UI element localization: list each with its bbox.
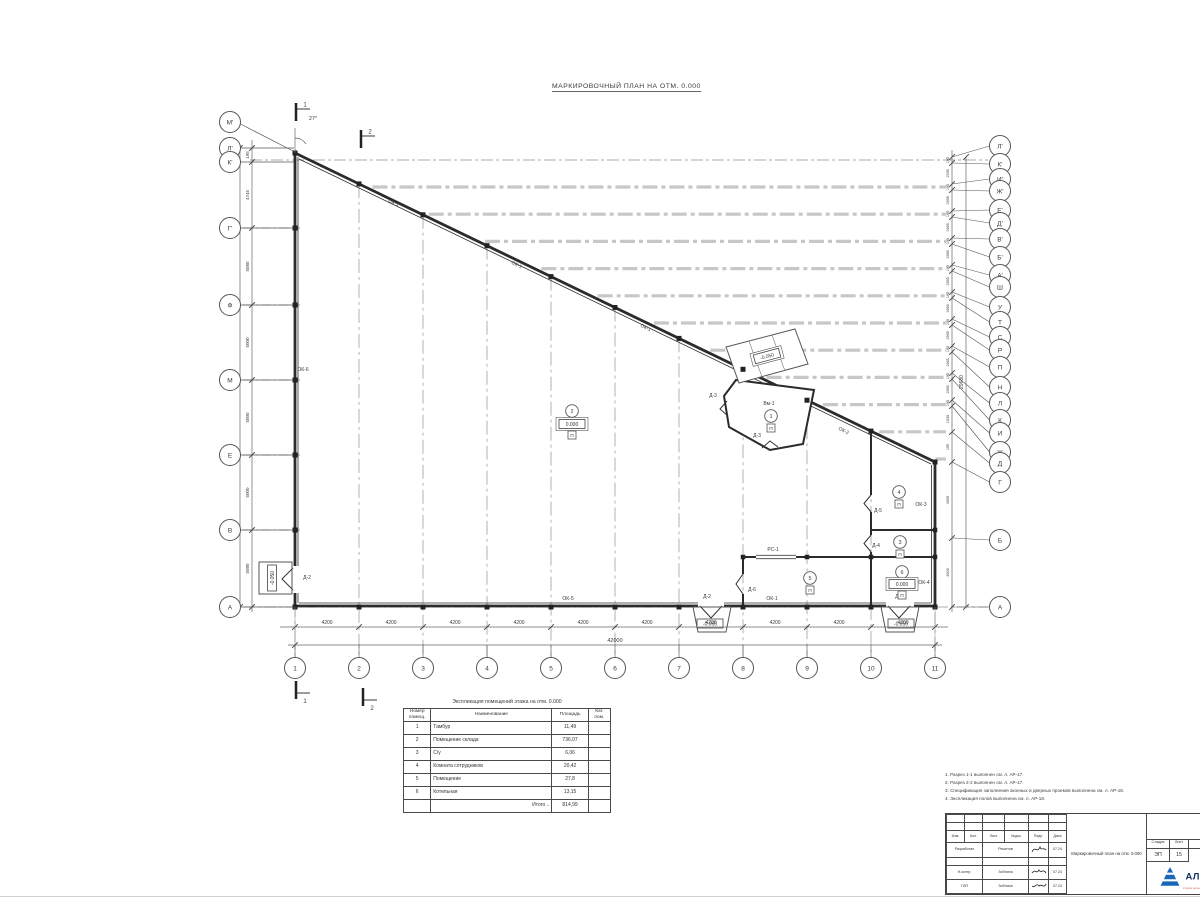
axis-leader (952, 146, 990, 157)
dim-label: 4200 (769, 620, 780, 626)
col-izm: Изм. (947, 831, 965, 843)
door-leaf (864, 495, 871, 512)
room-area: 6,06 (552, 747, 588, 760)
room-cat (588, 786, 610, 799)
note-line: 2. Разрез 2-2 выполнен см. л. АР-17. (945, 779, 1185, 787)
note-line: 4. Экспликация полов выполнена см. л. АР… (945, 795, 1185, 803)
table-row: 1Тамбур11,49 (404, 721, 611, 734)
axis-bubble-right-label: В' (997, 236, 1003, 243)
opening-label: ОК-1 (766, 596, 777, 602)
axis-bubble-right-label: И (998, 430, 1003, 437)
column-marker (357, 181, 362, 186)
column-marker (677, 336, 682, 341)
signer-role: Н.контр. (947, 866, 983, 880)
axis-bubble-right-label: К' (997, 161, 1002, 168)
axis-bubble-right-label: Ж' (996, 188, 1003, 195)
axis-leader (952, 462, 990, 482)
room-area: 20,42 (552, 760, 588, 773)
stage-label: Стадия (1147, 839, 1170, 849)
title-block: Изм. Кол. Лист №док. Подп. Дата Разработ… (945, 813, 1200, 895)
doc-name: Маркировочный план на отм. 0.000 (1071, 851, 1141, 857)
empty-row (947, 815, 1067, 823)
axis-bubble-right-label: Д (998, 460, 1003, 467)
column-marker (933, 460, 938, 465)
dim-total-label: 29680 (959, 375, 965, 389)
axis-bubble-bottom-label: 7 (677, 665, 681, 672)
empty-cell (404, 799, 431, 812)
axis-leader (952, 373, 990, 403)
floor-plan: -0.050-0.050-0.050-0.0504200420042004200… (0, 0, 1200, 770)
column-marker (933, 528, 938, 533)
axis-bubble-left-label: М' (227, 119, 234, 126)
signer-row: Н.контр. Зобнина 07.24 (947, 866, 1067, 880)
axis-bubble-right-label: Д' (997, 220, 1003, 227)
note-line: 1. Разрез 1-1 выполнен см. л. АР-17. (945, 771, 1185, 779)
opening-label: ОК-4 (918, 580, 929, 586)
dim-label: 5000 (245, 487, 250, 498)
room-number: 2 (404, 734, 431, 747)
axis-bubble-right-label: Ш (997, 284, 1003, 291)
sign-date: 07.24 (1049, 842, 1067, 857)
axis-leader (952, 346, 990, 367)
dim-label: 1965 (946, 331, 950, 339)
signer-role: ГИП (947, 880, 983, 894)
column-marker (677, 605, 682, 610)
col-area: Площадь (552, 708, 588, 721)
room-name: С/у (431, 747, 552, 760)
axis-bubble-bottom-label: 5 (549, 665, 553, 672)
column-marker (549, 605, 554, 610)
col-kol: Кол. (965, 831, 983, 843)
dim-label: 195 (946, 157, 950, 163)
dim-label: 4500 (946, 568, 950, 576)
column-marker (805, 555, 810, 560)
opening-label: Д-4 (872, 543, 880, 549)
room-number: 6 (900, 570, 903, 576)
dim-label: 195 (946, 319, 950, 325)
opening-label: Д-2 (703, 594, 711, 600)
opening-label: ОК-3 (915, 502, 926, 508)
dim-label: 195 (245, 151, 250, 159)
room-number: 1 (769, 414, 772, 420)
axis-bubble-left-label: В (228, 527, 232, 534)
axis-bubble-left-label: А (228, 604, 233, 611)
column-marker (741, 605, 746, 610)
opening-label: Д-2 (303, 575, 311, 581)
axis-leader (952, 406, 990, 452)
titleblock-signature-table: Изм. Кол. Лист №док. Подп. Дата Разработ… (946, 814, 1067, 894)
opening-label: Вм-1 (763, 401, 774, 407)
dim-label: 1935 (946, 415, 950, 423)
col-podp: Подп. (1029, 831, 1049, 843)
room-name: Тамбур (431, 721, 552, 734)
signer-row: ГИП Зобнина 07.24 (947, 880, 1067, 894)
floor-type: П (898, 552, 902, 558)
room-number: 4 (897, 490, 900, 496)
dim-label: 1965 (946, 196, 950, 204)
signer-role: Разработал (947, 842, 983, 857)
dim-label: 195 (946, 211, 950, 217)
logo-pyramid-icon (1159, 866, 1181, 888)
axis-leader (952, 298, 990, 322)
dim-label: 4200 (321, 620, 332, 626)
angle-label: 27° (309, 116, 317, 122)
dim-label: 4200 (513, 620, 524, 626)
column-marker (869, 555, 874, 560)
room-schedule: Экспликация помещений этажа на отм. 0.00… (403, 699, 611, 813)
dim-label: 195 (946, 238, 950, 244)
column-marker (869, 429, 874, 434)
axis-leader (952, 210, 990, 211)
col-data: Дата (1049, 831, 1067, 843)
axis-bubble-bottom-label: 10 (867, 665, 875, 672)
elevation-value: 0.000 (896, 582, 909, 588)
section-mark-label: 2 (368, 130, 372, 136)
schedule-caption: Экспликация помещений этажа на отм. 0.00… (403, 699, 611, 705)
empty-row (947, 823, 1067, 831)
extra-cell (1189, 839, 1200, 849)
signer-name: Решетов (983, 842, 1029, 857)
opening-label: Д-3 (709, 393, 717, 399)
room-cat (588, 760, 610, 773)
opening-label: Д-5 (874, 508, 882, 514)
opening-label: Д-6 (748, 587, 756, 593)
axis-bubble-right-label: Б (998, 537, 1002, 544)
room-number: 2 (570, 409, 573, 415)
room-number: 3 (898, 540, 901, 546)
stage-sheet-block: Стадия Лист ЭП 15 АЛЬЯНС строительная ко… (1146, 814, 1200, 894)
room-number: 3 (404, 747, 431, 760)
axis-bubble-right-label: Л (998, 400, 1002, 407)
axis-bubble-right-label: Б' (997, 254, 1003, 261)
col-list: Лист (983, 831, 1005, 843)
room-area: 27,8 (552, 773, 588, 786)
dim-label: 4200 (705, 620, 716, 626)
general-notes: 1. Разрез 1-1 выполнен см. л. АР-17. 2. … (945, 771, 1185, 803)
dim-label: 4745 (245, 189, 250, 200)
dim-label: 195 (946, 400, 950, 406)
column-marker (421, 605, 426, 610)
sheet-edge-line (0, 896, 1200, 897)
axis-bubble-right-label: А (998, 604, 1003, 611)
dim-label: 195 (946, 184, 950, 190)
axis-leader (952, 319, 990, 337)
logo-subtext: строительная компания (1183, 886, 1200, 890)
table-row: 4Комната сотрудников20,42 (404, 760, 611, 773)
dim-label: 5080 (245, 563, 250, 574)
floor-type: П (769, 426, 773, 432)
door-leaf (864, 535, 871, 552)
section-mark-label: 2 (370, 706, 374, 712)
axis-leader (952, 163, 990, 164)
angle-arc (295, 138, 306, 144)
floor-type: П (900, 593, 904, 599)
axis-bubble-left-label: Ф (228, 302, 233, 309)
total-label: Итого .. (431, 799, 552, 812)
room-name: Помещение склада (431, 734, 552, 747)
sheet-value: 15 (1170, 849, 1189, 862)
opening-label: РС-1 (767, 547, 779, 553)
axis-bubble-right-label: Л' (997, 143, 1003, 150)
signer-row: Разработал Решетов 07.24 (947, 842, 1067, 857)
dim-label: 1965 (946, 277, 950, 285)
sign-date: 07.24 (1049, 880, 1067, 894)
room-number: 5 (404, 773, 431, 786)
floor-type: П (897, 502, 901, 508)
dim-label: 4905 (946, 496, 950, 504)
column-marker (741, 555, 746, 560)
empty-row (947, 857, 1067, 865)
sheet-label: Лист (1170, 839, 1189, 849)
sign-date: 07.24 (1049, 866, 1067, 880)
axis-bubble-right-label: Н (998, 384, 1003, 391)
section-mark-label: 1 (303, 699, 307, 705)
dim-total-label: 42000 (607, 638, 622, 644)
opening-label: Д-3 (753, 433, 761, 439)
axis-bubble-bottom-label: 1 (293, 665, 297, 672)
total-value: 814,99 (552, 799, 588, 812)
table-row: 3С/у6,06 (404, 747, 611, 760)
dim-label: 195 (946, 373, 950, 379)
column-marker (421, 212, 426, 217)
axis-bubble-bottom-label: 4 (485, 665, 489, 672)
dim-label: 5080 (245, 261, 250, 272)
stage-value: ЭП (1147, 849, 1170, 862)
dim-label: 1965 (946, 304, 950, 312)
axis-bubble-right-label: Р (998, 347, 1002, 354)
axis-leader (952, 179, 990, 184)
axis-leader (241, 124, 294, 151)
dim-label: 195 (946, 346, 950, 352)
axis-bubble-bottom-label: 6 (613, 665, 617, 672)
dim-label: 5000 (245, 412, 250, 423)
dim-label: 4200 (577, 620, 588, 626)
dim-label: 1965 (946, 223, 950, 231)
section-mark-label: 1 (303, 103, 307, 109)
axis-leader (952, 292, 990, 307)
column-marker (613, 305, 618, 310)
col-cat: Кат.пом. (588, 708, 610, 721)
room-name: Комната сотрудников (431, 760, 552, 773)
axis-bubble-bottom-label: 3 (421, 665, 425, 672)
dim-label: 1965 (946, 250, 950, 258)
axis-bubble-left-label: Е (228, 452, 233, 459)
axis-bubble-right-label: П (998, 364, 1003, 371)
axis-leader (952, 538, 990, 540)
column-marker (613, 605, 618, 610)
room-number: 5 (808, 576, 811, 582)
elevation-value: 0.000 (566, 422, 579, 428)
doc-name-cell: Маркировочный план на отм. 0.000 (1066, 814, 1146, 894)
room-cat (588, 773, 610, 786)
room-number: 1 (404, 721, 431, 734)
column-marker (485, 243, 490, 248)
column-marker (805, 398, 810, 403)
axis-bubble-bottom-label: 9 (805, 665, 809, 672)
floor-type: П (808, 588, 812, 594)
elevation-mark: -0.050 (268, 565, 277, 591)
dim-label: 4200 (385, 620, 396, 626)
axis-leader (952, 244, 990, 257)
axis-leader (952, 379, 990, 420)
titleblock-header-row: Изм. Кол. Лист №док. Подп. Дата (947, 831, 1067, 843)
schedule-header-row: Номерпомещ. Наименование Площадь Кат.пом… (404, 708, 611, 721)
empty-cell (588, 799, 610, 812)
elevation-mark: 0.000 (886, 578, 918, 591)
axis-bubble-left-label: Г' (228, 225, 233, 232)
axis-leader (952, 400, 990, 433)
sheet: { "title": "МАРКИРОВОЧНЫЙ ПЛАН НА ОТМ. 0… (0, 0, 1200, 900)
col-dok: №док. (1005, 831, 1029, 843)
axis-bubble-left-label: М (227, 377, 232, 384)
axis-bubble-left-label: К' (227, 159, 232, 166)
room-name: Котельная (431, 786, 552, 799)
logo-text: АЛЬЯНС (1185, 872, 1200, 883)
col-name: Наименование (431, 708, 552, 721)
axis-bubble-bottom-label: 2 (357, 665, 361, 672)
column-marker (805, 605, 810, 610)
col-number: Номерпомещ. (404, 708, 431, 721)
dim-label: 195 (946, 265, 950, 271)
axis-leader (952, 190, 990, 191)
table-row: 5Помещение27,8 (404, 773, 611, 786)
column-marker (741, 367, 746, 372)
axis-leader (952, 217, 990, 223)
dim-label: 1965 (946, 385, 950, 393)
floor-type: П (570, 433, 574, 439)
axis-bubble-right-label: Т (998, 319, 1002, 326)
axis-leader (952, 352, 990, 387)
room-cat (588, 721, 610, 734)
room-area: 11,49 (552, 721, 588, 734)
signer-name: Зобнина (983, 866, 1029, 880)
room-cat (588, 734, 610, 747)
dim-label: 1935 (946, 169, 950, 177)
axis-bubble-bottom-label: 8 (741, 665, 745, 672)
opening-label: ОК-5 (562, 596, 573, 602)
axis-bubble-bottom-label: 11 (932, 665, 939, 672)
note-line: 3. Спецификация заполнения оконных и две… (945, 787, 1185, 795)
room-number: 6 (404, 786, 431, 799)
dim-label: 195 (946, 444, 950, 450)
signature (1029, 866, 1049, 880)
column-marker (549, 274, 554, 279)
opening-label: ОК-6 (297, 367, 308, 373)
room-name: Помещение (431, 773, 552, 786)
room-number: 4 (404, 760, 431, 773)
company-logo: АЛЬЯНС строительная компания (1159, 866, 1200, 892)
room-cat (588, 747, 610, 760)
axis-leader (952, 238, 990, 239)
axis-bubble-right-label: Г (998, 479, 1002, 486)
opening-label: ОК-2 (837, 426, 850, 436)
elevation-value: -0.050 (270, 571, 276, 585)
column-marker (357, 605, 362, 610)
signature (1029, 880, 1049, 894)
signer-name: Зобнина (983, 880, 1029, 894)
axis-leader (952, 432, 990, 463)
dim-label: 1965 (946, 358, 950, 366)
axis-leader (952, 325, 990, 350)
dim-label: 4200 (641, 620, 652, 626)
room-area: 13,15 (552, 786, 588, 799)
column-marker (869, 605, 874, 610)
column-marker (485, 605, 490, 610)
dim-label: 195 (946, 292, 950, 298)
column-marker (933, 555, 938, 560)
dim-label: 5000 (245, 337, 250, 348)
total-row: Итого ..814,99 (404, 799, 611, 812)
schedule-table: Номерпомещ. Наименование Площадь Кат.пом… (403, 708, 611, 813)
room-area: 736,07 (552, 734, 588, 747)
dim-label: 4200 (833, 620, 844, 626)
table-row: 2Помещение склада736,07 (404, 734, 611, 747)
elevation-mark: 0.000 (556, 418, 588, 431)
table-row: 6Котельная13,15 (404, 786, 611, 799)
signature (1029, 842, 1049, 857)
dim-label: 4200 (897, 620, 908, 626)
dim-label: 4200 (449, 620, 460, 626)
door-leaf (736, 574, 743, 594)
